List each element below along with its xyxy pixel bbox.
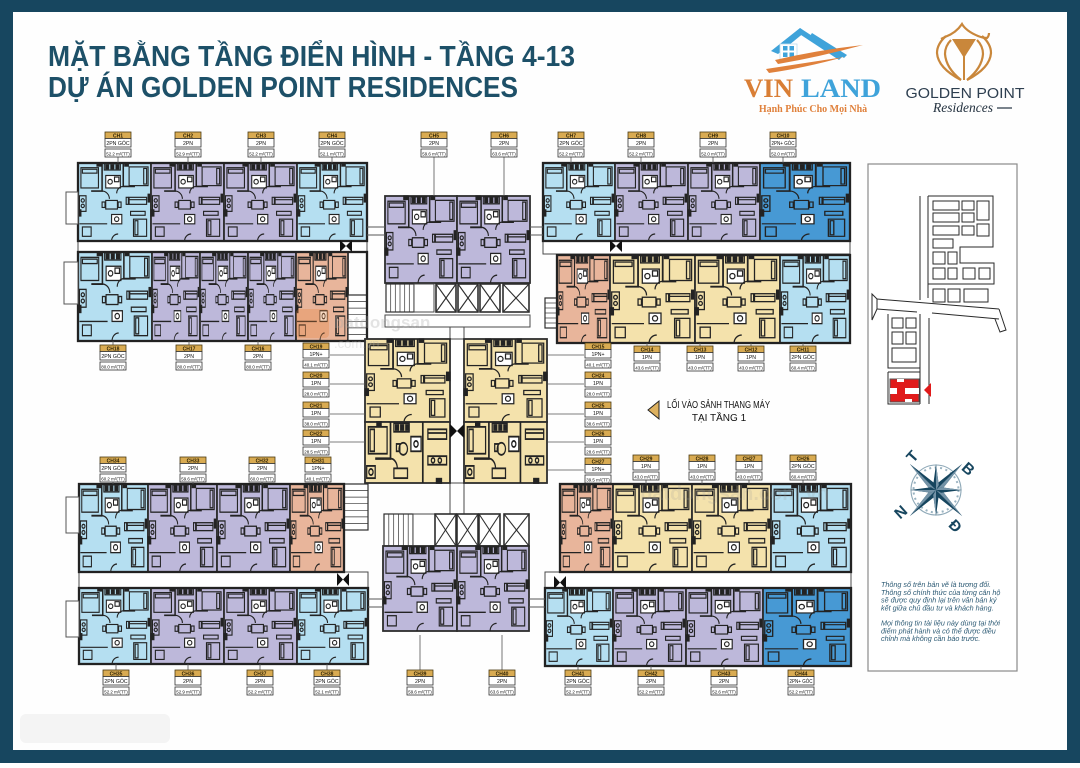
svg-text:2PN: 2PN bbox=[188, 466, 198, 472]
svg-text:1PN: 1PN bbox=[642, 355, 652, 361]
svg-text:Hạnh Phúc Cho Mọi Nhà: Hạnh Phúc Cho Mọi Nhà bbox=[759, 104, 867, 115]
svg-text:CH27: CH27 bbox=[743, 456, 756, 462]
svg-text:52.2 m²(TT): 52.2 m²(TT) bbox=[249, 151, 273, 157]
svg-text:63.6 m²(TT): 63.6 m²(TT) bbox=[490, 689, 514, 695]
svg-text:CH38: CH38 bbox=[321, 671, 334, 677]
svg-text:CH7: CH7 bbox=[566, 133, 576, 139]
svg-text:CH36: CH36 bbox=[182, 671, 195, 677]
svg-text:28.0 m²(TT): 28.0 m²(TT) bbox=[586, 391, 610, 397]
svg-text:52.2 m²(TT): 52.2 m²(TT) bbox=[559, 151, 583, 157]
svg-text:chỉnh mà không cần báo trước.: chỉnh mà không cần báo trước. bbox=[881, 634, 980, 643]
svg-text:CH44: CH44 bbox=[795, 671, 808, 677]
svg-text:CH39: CH39 bbox=[414, 671, 427, 677]
svg-text:CH26: CH26 bbox=[592, 431, 605, 437]
svg-text:CH5: CH5 bbox=[429, 133, 439, 139]
svg-text:2PN GÓC: 2PN GÓC bbox=[106, 140, 130, 147]
svg-text:2PN: 2PN bbox=[497, 679, 507, 685]
svg-text:CH24: CH24 bbox=[592, 373, 605, 379]
svg-text:CH11: CH11 bbox=[797, 347, 810, 353]
svg-text:2PN: 2PN bbox=[183, 679, 193, 685]
svg-text:52.2 m²(TT): 52.2 m²(TT) bbox=[248, 689, 272, 695]
svg-text:52.2 m²(TT): 52.2 m²(TT) bbox=[639, 689, 663, 695]
svg-text:CH22: CH22 bbox=[310, 431, 323, 437]
svg-text:CH31: CH31 bbox=[312, 458, 325, 464]
svg-text:1PN: 1PN bbox=[695, 355, 705, 361]
svg-text:CH18: CH18 bbox=[107, 346, 120, 352]
svg-text:52.6 m²(TT): 52.6 m²(TT) bbox=[712, 689, 736, 695]
svg-text:52.0 m²(TT): 52.0 m²(TT) bbox=[771, 151, 795, 157]
svg-text:CH37: CH37 bbox=[254, 671, 267, 677]
svg-text:43.6 m²(TT): 43.6 m²(TT) bbox=[635, 365, 659, 371]
svg-text:80.0 m²(TT): 80.0 m²(TT) bbox=[177, 364, 201, 370]
svg-text:CH9: CH9 bbox=[708, 133, 718, 139]
svg-text:52.2 m²(TT): 52.2 m²(TT) bbox=[106, 151, 130, 157]
svg-text:1PN: 1PN bbox=[593, 381, 603, 387]
svg-text:CH2: CH2 bbox=[183, 133, 193, 139]
svg-text:39.5 m²(TT): 39.5 m²(TT) bbox=[586, 477, 610, 483]
svg-text:batdongsan: batdongsan bbox=[334, 313, 430, 332]
svg-text:2PN: 2PN bbox=[256, 141, 266, 147]
svg-text:CH6: CH6 bbox=[499, 133, 509, 139]
svg-text:2PN GÓC: 2PN GÓC bbox=[791, 354, 815, 361]
svg-text:2PN GÓC: 2PN GÓC bbox=[104, 678, 128, 685]
svg-text:.com.vn: .com.vn bbox=[334, 336, 380, 351]
svg-text:CH19: CH19 bbox=[310, 344, 323, 350]
svg-text:63.6 m²(TT): 63.6 m²(TT) bbox=[492, 151, 516, 157]
svg-text:1PN: 1PN bbox=[593, 439, 603, 445]
svg-text:CH1: CH1 bbox=[113, 133, 123, 139]
svg-text:1PN: 1PN bbox=[311, 381, 321, 387]
svg-text:CH10: CH10 bbox=[777, 133, 790, 139]
svg-text:CH17: CH17 bbox=[183, 346, 196, 352]
svg-text:MẶT BẰNG TẦNG ĐIỂN HÌNH - TẦNG: MẶT BẰNG TẦNG ĐIỂN HÌNH - TẦNG 4-13 bbox=[48, 39, 575, 73]
svg-text:CH40: CH40 bbox=[496, 671, 509, 677]
svg-text:60.4 m²(TT): 60.4 m²(TT) bbox=[791, 365, 815, 371]
svg-text:2PN GÓC: 2PN GÓC bbox=[559, 140, 583, 147]
svg-text:1PN: 1PN bbox=[697, 464, 707, 470]
svg-text:Residences: Residences bbox=[932, 100, 993, 115]
svg-text:2PN: 2PN bbox=[636, 141, 646, 147]
svg-text:CH42: CH42 bbox=[645, 671, 658, 677]
svg-text:43.0 m²(TT): 43.0 m²(TT) bbox=[737, 474, 761, 480]
svg-text:VIN: VIN bbox=[744, 74, 793, 103]
svg-text:kết giữa chủ đầu tư và khách h: kết giữa chủ đầu tư và khách hàng. bbox=[881, 603, 994, 612]
svg-text:CH43: CH43 bbox=[718, 671, 731, 677]
svg-text:2PN: 2PN bbox=[253, 354, 263, 360]
svg-text:CH20: CH20 bbox=[310, 373, 323, 379]
svg-text:1PN+: 1PN+ bbox=[591, 352, 604, 358]
svg-text:CH29: CH29 bbox=[640, 456, 653, 462]
svg-text:DỰ ÁN GOLDEN POINT RESIDENCES: DỰ ÁN GOLDEN POINT RESIDENCES bbox=[48, 70, 518, 104]
svg-text:CH21: CH21 bbox=[310, 403, 323, 409]
svg-text:CH4: CH4 bbox=[327, 133, 337, 139]
svg-text:59.6 m²(TT): 59.6 m²(TT) bbox=[408, 689, 432, 695]
svg-text:52.2 m²(TT): 52.2 m²(TT) bbox=[789, 689, 813, 695]
svg-text:2PN: 2PN bbox=[429, 141, 439, 147]
svg-text:CH13: CH13 bbox=[694, 347, 707, 353]
svg-text:43.0 m²(TT): 43.0 m²(TT) bbox=[688, 365, 712, 371]
svg-text:2PN: 2PN bbox=[255, 679, 265, 685]
svg-text:43.0 m²(TT): 43.0 m²(TT) bbox=[739, 365, 763, 371]
svg-text:52.9 m²(TT): 52.9 m²(TT) bbox=[176, 151, 200, 157]
svg-text:CH33: CH33 bbox=[187, 458, 200, 464]
svg-text:59.6 m²(TT): 59.6 m²(TT) bbox=[181, 476, 205, 482]
svg-text:CH8: CH8 bbox=[636, 133, 646, 139]
svg-text:1PN+: 1PN+ bbox=[309, 352, 322, 358]
svg-text:28.6 m²(TT): 28.6 m²(TT) bbox=[586, 449, 610, 455]
svg-text:CH35: CH35 bbox=[110, 671, 123, 677]
svg-text:2PN+ GÓC: 2PN+ GÓC bbox=[790, 678, 813, 685]
svg-text:52.2 m²(TT): 52.2 m²(TT) bbox=[629, 151, 653, 157]
svg-text:CH32: CH32 bbox=[256, 458, 269, 464]
svg-text:2PN GÓC: 2PN GÓC bbox=[791, 463, 815, 470]
svg-text:CH26: CH26 bbox=[797, 456, 810, 462]
svg-text:LỐI VÀO SẢNH THANG MÁY: LỐI VÀO SẢNH THANG MÁY bbox=[667, 397, 770, 411]
svg-text:2PN: 2PN bbox=[499, 141, 509, 147]
svg-text:CH25: CH25 bbox=[592, 403, 605, 409]
svg-text:1PN+: 1PN+ bbox=[591, 467, 604, 473]
svg-text:40.1 m²(TT): 40.1 m²(TT) bbox=[304, 362, 328, 368]
svg-text:1PN: 1PN bbox=[593, 411, 603, 417]
svg-text:2PN: 2PN bbox=[719, 679, 729, 685]
svg-text:1PN: 1PN bbox=[744, 464, 754, 470]
svg-text:60.2 m²(TT): 60.2 m²(TT) bbox=[101, 476, 125, 482]
svg-text:2PN: 2PN bbox=[415, 679, 425, 685]
svg-text:2PN: 2PN bbox=[708, 141, 718, 147]
svg-text:1PN: 1PN bbox=[746, 355, 756, 361]
svg-text:40.1 m²(TT): 40.1 m²(TT) bbox=[586, 362, 610, 368]
svg-text:2PN: 2PN bbox=[184, 354, 194, 360]
svg-text:52.0 m²(TT): 52.0 m²(TT) bbox=[701, 151, 725, 157]
svg-text:2PN GÓC: 2PN GÓC bbox=[566, 678, 590, 685]
svg-text:CH27: CH27 bbox=[592, 459, 605, 465]
svg-text:60.0 m²(TT): 60.0 m²(TT) bbox=[250, 476, 274, 482]
svg-text:52.2 m²(TT): 52.2 m²(TT) bbox=[104, 689, 128, 695]
svg-text:2PN: 2PN bbox=[257, 466, 267, 472]
svg-text:1PN: 1PN bbox=[311, 411, 321, 417]
svg-text:38.6 m²(TT): 38.6 m²(TT) bbox=[586, 421, 610, 427]
svg-text:2PN GÓC: 2PN GÓC bbox=[101, 353, 125, 360]
svg-text:CH12: CH12 bbox=[745, 347, 758, 353]
svg-text:40.1 m²(TT): 40.1 m²(TT) bbox=[306, 476, 330, 482]
svg-text:43.0 m²(TT): 43.0 m²(TT) bbox=[634, 474, 658, 480]
svg-text:52.2 m²(TT): 52.2 m²(TT) bbox=[566, 689, 590, 695]
svg-text:2PN GÓC: 2PN GÓC bbox=[320, 140, 344, 147]
svg-text:CH34: CH34 bbox=[107, 458, 120, 464]
svg-text:CH28: CH28 bbox=[696, 456, 709, 462]
svg-text:28.5 m²(TT): 28.5 m²(TT) bbox=[304, 449, 328, 455]
svg-text:TẠI TẦNG 1: TẠI TẦNG 1 bbox=[692, 411, 747, 424]
svg-text:CH16: CH16 bbox=[252, 346, 265, 352]
svg-text:28.0 m²(TT): 28.0 m²(TT) bbox=[304, 391, 328, 397]
svg-text:2PN GÓC: 2PN GÓC bbox=[101, 465, 125, 472]
svg-text:52.1 m²(TT): 52.1 m²(TT) bbox=[320, 151, 344, 157]
svg-text:52.1 m²(TT): 52.1 m²(TT) bbox=[315, 689, 339, 695]
svg-text:CH3: CH3 bbox=[256, 133, 266, 139]
svg-text:LAND: LAND bbox=[801, 74, 881, 103]
svg-text:59.6 m²(TT): 59.6 m²(TT) bbox=[422, 151, 446, 157]
svg-text:CH14: CH14 bbox=[641, 347, 654, 353]
svg-text:2PN GÓC: 2PN GÓC bbox=[315, 678, 339, 685]
svg-text:CH15: CH15 bbox=[592, 344, 605, 350]
svg-text:60.4 m²(TT): 60.4 m²(TT) bbox=[791, 474, 815, 480]
svg-text:batdongsan.com.vn: batdongsan.com.vn bbox=[640, 483, 829, 505]
svg-text:2PN: 2PN bbox=[183, 141, 193, 147]
svg-text:52.9 m²(TT): 52.9 m²(TT) bbox=[176, 689, 200, 695]
svg-text:2PN+ GÓC: 2PN+ GÓC bbox=[772, 140, 795, 147]
svg-text:2PN: 2PN bbox=[646, 679, 656, 685]
svg-text:80.0 m²(TT): 80.0 m²(TT) bbox=[101, 364, 125, 370]
svg-text:38.0 m²(TT): 38.0 m²(TT) bbox=[304, 421, 328, 427]
svg-text:1PN: 1PN bbox=[311, 439, 321, 445]
svg-text:CH41: CH41 bbox=[572, 671, 585, 677]
svg-text:1PN+: 1PN+ bbox=[311, 466, 324, 472]
svg-text:43.0 m²(TT): 43.0 m²(TT) bbox=[690, 474, 714, 480]
svg-text:1PN: 1PN bbox=[641, 464, 651, 470]
svg-text:80.0 m²(TT): 80.0 m²(TT) bbox=[246, 364, 270, 370]
